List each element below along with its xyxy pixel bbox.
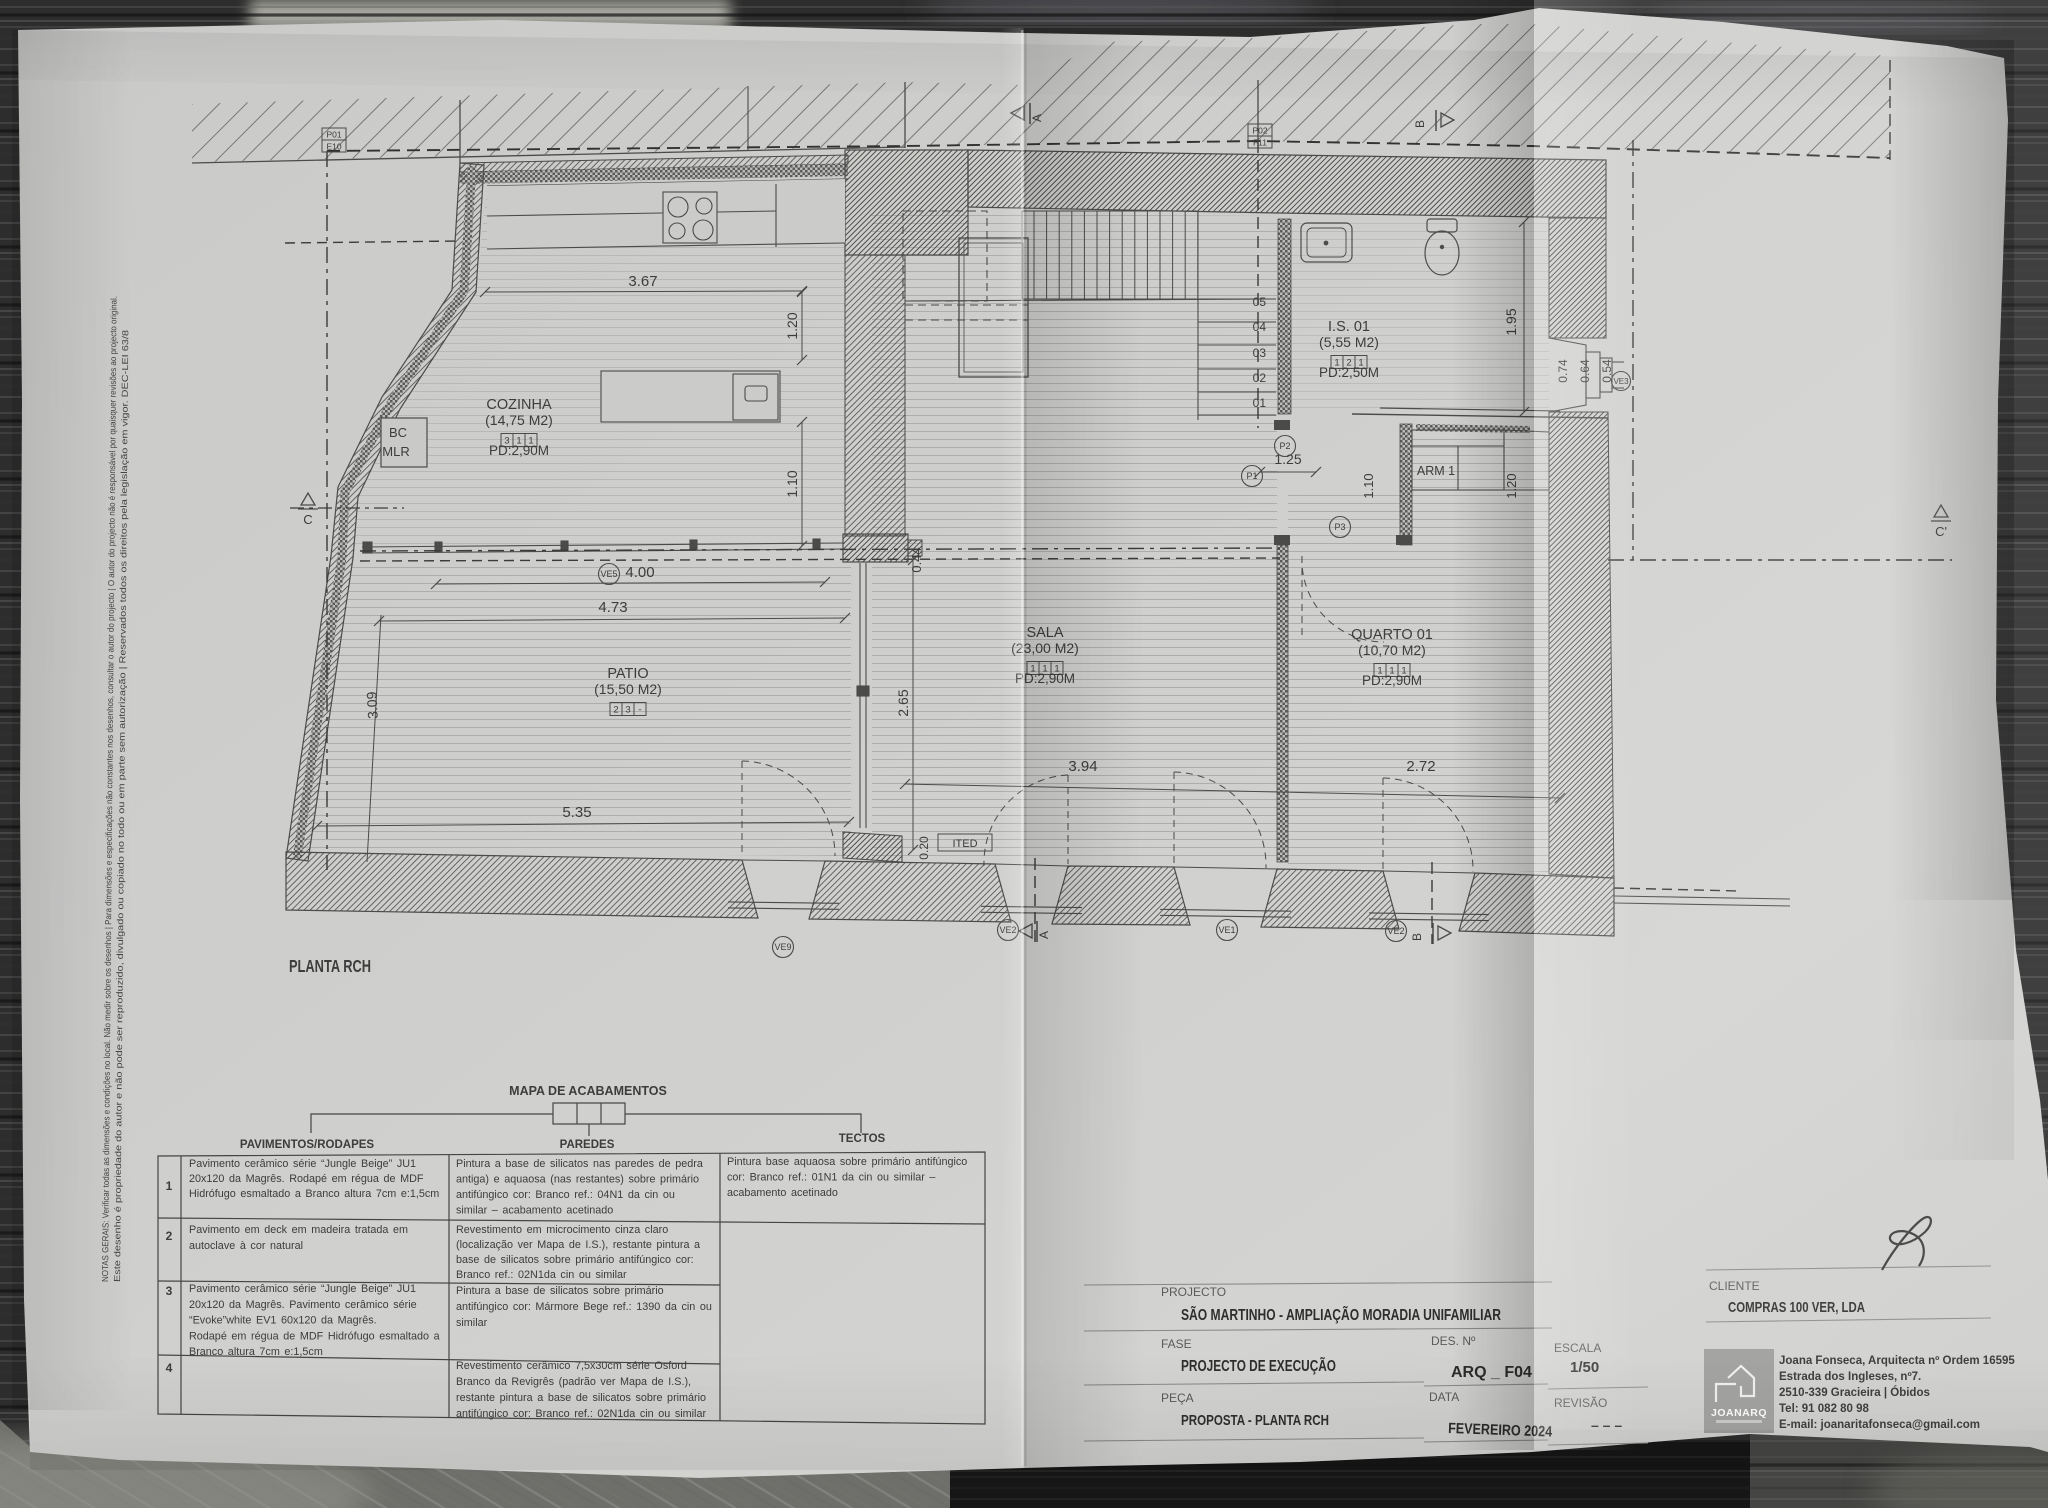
svg-text:(14,75 M2): (14,75 M2) bbox=[485, 412, 553, 428]
svg-text:3: 3 bbox=[166, 1284, 173, 1298]
svg-text:(localização ver Mapa de I.S.): (localização ver Mapa de I.S.), restante… bbox=[456, 1239, 700, 1251]
svg-text:similar – acabamento acetinado: similar – acabamento acetinado bbox=[456, 1205, 613, 1217]
svg-text:E10: E10 bbox=[326, 142, 341, 152]
svg-text:antiga) e aquaosa (nas restant: antiga) e aquaosa (nas restantes) sobre … bbox=[456, 1174, 699, 1186]
svg-text:20x120 da Magrês. Pavimento ce: 20x120 da Magrês. Pavimento cerâmico sér… bbox=[189, 1299, 417, 1311]
svg-text:similar: similar bbox=[456, 1317, 488, 1329]
svg-text:P01: P01 bbox=[326, 130, 341, 140]
svg-text:3: 3 bbox=[625, 705, 630, 716]
svg-text:VE5: VE5 bbox=[600, 569, 617, 579]
svg-text:F11: F11 bbox=[1253, 138, 1267, 148]
svg-text:20x120 da Magrês. Rodapé em ré: 20x120 da Magrês. Rodapé em régua de MDF bbox=[189, 1173, 424, 1185]
svg-text:2: 2 bbox=[613, 705, 618, 716]
svg-text:P1: P1 bbox=[1246, 471, 1257, 481]
svg-text:(10,70 M2): (10,70 M2) bbox=[1358, 642, 1426, 658]
svg-text:VE1: VE1 bbox=[1218, 925, 1235, 935]
svg-text:ITED: ITED bbox=[952, 838, 977, 850]
svg-text:acabamento acetinado: acabamento acetinado bbox=[727, 1187, 838, 1199]
svg-text:Pavimento cerâmico série “Jung: Pavimento cerâmico série “Jungle Beige” … bbox=[189, 1158, 416, 1170]
svg-text:-: - bbox=[638, 705, 641, 716]
svg-text:1.10: 1.10 bbox=[784, 470, 800, 497]
svg-text:MAPA DE ACABAMENTOS: MAPA DE ACABAMENTOS bbox=[509, 1084, 667, 1098]
svg-text:BC: BC bbox=[389, 425, 407, 440]
svg-text:2.65: 2.65 bbox=[895, 689, 911, 716]
svg-text:4.73: 4.73 bbox=[598, 599, 627, 616]
svg-text:1.10: 1.10 bbox=[1361, 473, 1376, 498]
svg-text:0.44: 0.44 bbox=[909, 547, 924, 572]
svg-text:PLANTA RCH: PLANTA RCH bbox=[289, 956, 371, 976]
svg-text:C: C bbox=[303, 512, 312, 527]
svg-text:03: 03 bbox=[1253, 346, 1267, 360]
svg-text:COZINHA: COZINHA bbox=[486, 397, 552, 413]
svg-text:5.35: 5.35 bbox=[562, 804, 591, 821]
svg-text:01: 01 bbox=[1253, 396, 1267, 410]
svg-text:3.09: 3.09 bbox=[363, 691, 380, 719]
svg-text:TECTOS: TECTOS bbox=[839, 1133, 886, 1145]
svg-text:Rodapé em régua de MDF Hidrófu: Rodapé em régua de MDF Hidrófugo esmalta… bbox=[189, 1330, 440, 1342]
svg-text:Pintura base aquaosa sobre pri: Pintura base aquaosa sobre primário anti… bbox=[727, 1156, 967, 1168]
svg-text:Pavimento cerâmico série “Jung: Pavimento cerâmico série “Jungle Beige” … bbox=[189, 1283, 416, 1295]
svg-text:PROJECTO: PROJECTO bbox=[1161, 1285, 1226, 1299]
svg-text:antifúngico cor: Mármore Bege: antifúngico cor: Mármore Bege ref.: 1390… bbox=[456, 1301, 712, 1313]
svg-text:PD:2,90M: PD:2,90M bbox=[1362, 673, 1422, 688]
svg-text:3.67: 3.67 bbox=[628, 273, 657, 290]
svg-text:05: 05 bbox=[1253, 295, 1267, 309]
svg-text:04: 04 bbox=[1253, 320, 1267, 334]
svg-text:02: 02 bbox=[1253, 371, 1267, 385]
svg-text:Branco ref.: 02N1da cin ou sim: Branco ref.: 02N1da cin ou similar bbox=[456, 1269, 627, 1281]
svg-text:VE9: VE9 bbox=[774, 942, 791, 952]
svg-text:Pintura a base de silicatos na: Pintura a base de silicatos nas paredes … bbox=[456, 1158, 703, 1170]
svg-text:autoclave à cor natural: autoclave à cor natural bbox=[189, 1240, 303, 1252]
svg-text:QUARTO 01: QUARTO 01 bbox=[1351, 627, 1433, 643]
svg-text:1.20: 1.20 bbox=[784, 312, 800, 339]
svg-text:Hidrófugo esmaltado a Branco a: Hidrófugo esmaltado a Branco altura 7cm … bbox=[189, 1188, 439, 1200]
svg-text:2: 2 bbox=[166, 1229, 173, 1243]
svg-text:PD:2,50M: PD:2,50M bbox=[1319, 365, 1379, 380]
svg-text:antifúngico cor: Branco ref.:: antifúngico cor: Branco ref.: 04N1 da ci… bbox=[456, 1189, 675, 1201]
svg-text:PAREDES: PAREDES bbox=[560, 1139, 615, 1151]
svg-text:P3: P3 bbox=[1334, 522, 1345, 532]
svg-text:PD:2,90M: PD:2,90M bbox=[489, 443, 549, 458]
svg-text:PAVIMENTOS/RODAPES: PAVIMENTOS/RODAPES bbox=[240, 1139, 375, 1151]
svg-text:FASE: FASE bbox=[1161, 1337, 1192, 1351]
svg-text:VE2: VE2 bbox=[1387, 926, 1404, 936]
svg-text:Pavimento em deck em madeira t: Pavimento em deck em madeira tratada em bbox=[189, 1224, 408, 1236]
svg-text:Revestimento em microcimento c: Revestimento em microcimento cinza claro bbox=[456, 1224, 668, 1236]
svg-text:P2: P2 bbox=[1279, 441, 1290, 451]
svg-text:(5,55 M2): (5,55 M2) bbox=[1319, 334, 1379, 350]
svg-text:1: 1 bbox=[166, 1179, 173, 1193]
svg-text:PATIO: PATIO bbox=[607, 666, 648, 682]
svg-text:Pintura a base de silicatos so: Pintura a base de silicatos sobre primár… bbox=[456, 1285, 664, 1297]
svg-text:P02: P02 bbox=[1252, 126, 1267, 136]
svg-text:base de silicatos sobre primár: base de silicatos sobre primário antifún… bbox=[456, 1254, 694, 1266]
svg-text:cor: Branco ref.: 01N1 da cin: cor: Branco ref.: 01N1 da cin ou similar… bbox=[727, 1172, 935, 1184]
svg-text:1.25: 1.25 bbox=[1274, 451, 1301, 467]
svg-text:B: B bbox=[1410, 933, 1424, 941]
svg-text:0.20: 0.20 bbox=[917, 836, 931, 860]
svg-text:(15,50 M2): (15,50 M2) bbox=[594, 681, 662, 697]
svg-text:4.00: 4.00 bbox=[625, 564, 654, 581]
svg-text:I.S. 01: I.S. 01 bbox=[1328, 319, 1370, 335]
svg-text:B: B bbox=[1413, 120, 1427, 128]
svg-text:“Evoke”white EV1 60x120 da Mag: “Evoke”white EV1 60x120 da Magrês. bbox=[189, 1315, 377, 1327]
svg-text:2.72: 2.72 bbox=[1406, 758, 1435, 775]
svg-text:MLR: MLR bbox=[382, 444, 409, 459]
svg-text:ARM 1: ARM 1 bbox=[1417, 464, 1455, 478]
